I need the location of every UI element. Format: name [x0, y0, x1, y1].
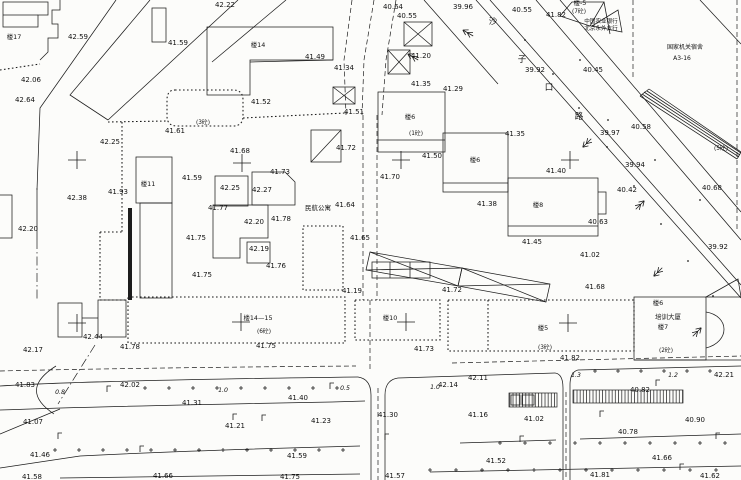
wall-fence — [128, 297, 345, 343]
spot-elevation-label: 41.82 — [546, 11, 566, 19]
spot-elevation-label: 41.61 — [165, 127, 185, 135]
tree-point-mark — [428, 468, 432, 472]
building-outline — [458, 284, 550, 286]
spot-elevation-label: 41.64 — [335, 201, 356, 209]
tree-point-mark — [317, 448, 321, 452]
tree-point-mark — [623, 441, 627, 445]
spot-elevation-label: 41.68 — [230, 147, 250, 155]
building-outline — [0, 195, 12, 238]
spot-elevation-label: 41.58 — [22, 473, 42, 480]
spot-elevation-label: 41.46 — [30, 451, 51, 459]
hatched-structure — [573, 390, 683, 403]
dashed-boundary — [0, 366, 356, 371]
spot-elevation-label: 41.82 — [560, 354, 580, 362]
structure-note-label: (7砼) — [572, 7, 586, 15]
tree-point-mark — [698, 441, 702, 445]
traffic-arrow-icon — [652, 266, 665, 279]
spot-elevation-label: 41.75 — [280, 473, 300, 480]
survey-point-dot — [687, 260, 689, 262]
tree-point-mark — [77, 448, 81, 452]
building-name-label: 中国农业银行 — [584, 17, 618, 25]
street-lamp-icon — [385, 434, 389, 440]
tree-point-mark — [53, 448, 57, 452]
spot-elevation-label: 40.58 — [631, 123, 651, 131]
tree-point-mark — [573, 441, 577, 445]
building-outline — [536, 0, 741, 240]
road-width-label: 1.3 — [571, 372, 581, 379]
dashed-boundary — [362, 0, 374, 115]
building-outline — [385, 378, 398, 480]
tree-point-mark — [548, 441, 552, 445]
tree-point-mark — [708, 369, 712, 373]
road-width-label: 1.0 — [430, 384, 440, 391]
building-number-label: 楼17 — [7, 32, 22, 41]
building-outline — [508, 178, 598, 236]
wall-fence — [0, 64, 40, 70]
survey-point-dot — [660, 223, 662, 225]
tree-point-mark — [598, 441, 602, 445]
building-outline — [60, 474, 360, 478]
building-name-label: 北京永外支行 — [584, 24, 618, 32]
structure-note-label: (6砼) — [257, 327, 271, 335]
spot-elevation-label: 42.11 — [468, 374, 488, 382]
spot-elevation-label: 42.02 — [120, 381, 140, 389]
road-width-label: 0.5 — [340, 385, 350, 392]
building-outline — [70, 0, 150, 120]
street-lamp-icon — [656, 380, 660, 386]
wall-fence — [303, 226, 343, 290]
building-number-label: 楼10 — [383, 313, 398, 322]
building-name-label: 培训大厦 — [655, 312, 682, 321]
building-outline — [706, 312, 724, 348]
spot-elevation-label: 41.62 — [700, 472, 720, 480]
spot-elevation-label: 41.45 — [522, 238, 542, 246]
spot-elevation-label: 41.77 — [208, 204, 228, 212]
tree-point-mark — [239, 386, 243, 390]
survey-point-dot — [654, 159, 656, 161]
tree-point-mark — [341, 448, 345, 452]
spot-elevation-label: 41.66 — [153, 472, 174, 480]
spot-elevation-label: 41.07 — [23, 418, 43, 426]
survey-point-dot — [712, 295, 714, 297]
spot-elevation-label: 42.17 — [23, 346, 43, 354]
tree-point-mark — [191, 386, 195, 390]
tree-point-mark — [149, 448, 153, 452]
spot-elevation-label: 41.72 — [336, 144, 356, 152]
building-outline — [98, 300, 126, 337]
street-lamp-icon — [233, 414, 237, 420]
street-lamp-icon — [600, 411, 604, 417]
building-outline — [37, 0, 116, 190]
spot-elevation-label: 41.52 — [486, 457, 506, 465]
tree-point-mark — [639, 369, 643, 373]
tree-point-mark — [662, 468, 666, 472]
wall-fence — [108, 121, 167, 122]
spot-elevation-label: 41.35 — [411, 80, 431, 88]
building-outline — [207, 27, 333, 95]
tree-point-mark — [723, 441, 727, 445]
tree-point-mark — [245, 448, 249, 452]
survey-point-dot — [579, 59, 581, 61]
spot-elevation-label: 41.31 — [182, 399, 202, 407]
survey-point-dot — [524, 39, 526, 41]
building-outline — [700, 0, 741, 44]
survey-grid-cross — [559, 314, 577, 332]
dashed-boundary — [382, 0, 396, 115]
spot-elevation-label: 40.82 — [630, 386, 650, 394]
tree-point-mark — [648, 441, 652, 445]
spot-elevation-label: 41.59 — [182, 174, 202, 182]
tree-point-mark — [167, 386, 171, 390]
building-outline — [332, 401, 365, 402]
spot-elevation-label: 41.16 — [468, 411, 489, 419]
building-name-label: A3-16 — [673, 55, 691, 62]
tree-point-mark — [616, 369, 620, 373]
building-number-label: 楼8 — [533, 200, 543, 209]
building-outline — [706, 279, 741, 297]
building-number-label: 楼6 — [405, 112, 415, 121]
building-number-label: 楼6 — [470, 155, 480, 164]
traffic-arrow-icon — [691, 326, 704, 339]
structure-note-label: (3砼) — [538, 343, 552, 351]
spot-elevation-label: 42.27 — [252, 186, 272, 194]
survey-point-dot — [578, 107, 580, 109]
spot-elevation-label: 42.20 — [244, 218, 264, 226]
building-outline — [58, 303, 82, 337]
spot-elevation-label: 41.49 — [305, 53, 325, 61]
spot-elevation-label: 39.97 — [600, 129, 620, 137]
spot-elevation-label: 42.59 — [68, 33, 88, 41]
spot-elevation-label: 42.21 — [714, 371, 734, 379]
spot-elevation-label: 41.02 — [580, 251, 600, 259]
spot-elevation-label: 41.83 — [15, 381, 35, 389]
spot-elevation-label: 40.90 — [685, 416, 705, 424]
spot-elevation-label: 41.19 — [342, 287, 362, 295]
building-number-label: 楼-5 — [574, 0, 587, 7]
survey-grid-cross — [392, 151, 410, 169]
building-outline — [430, 466, 741, 472]
spot-elevation-label: 41.51 — [344, 108, 364, 116]
road-width-label: 1.2 — [668, 372, 678, 379]
street-name-char: 口 — [545, 83, 554, 93]
spot-elevation-label: 42.14 — [438, 381, 459, 389]
dashed-boundary — [452, 356, 741, 363]
spot-elevation-label: 41.40 — [288, 394, 308, 402]
survey-grid-cross — [233, 154, 251, 172]
survey-point-dot — [606, 146, 608, 148]
tree-point-mark — [636, 468, 640, 472]
tree-point-mark — [221, 448, 225, 452]
spot-elevation-label: 39.94 — [625, 161, 646, 169]
survey-grid-cross — [397, 313, 415, 331]
spot-elevation-label: 40.63 — [588, 218, 608, 226]
site-plan-drawing: 42.2242.5941.5942.0642.6442.2540.6440.55… — [0, 0, 741, 480]
spot-elevation-label: 42.20 — [18, 225, 38, 233]
spot-elevation-label: 42.44 — [83, 333, 104, 341]
spot-elevation-label: 39.92 — [525, 66, 545, 74]
solid-wall-bar — [128, 208, 132, 300]
spot-elevation-label: 41.93 — [108, 188, 128, 196]
structure-note-label: (5砼) — [714, 144, 728, 152]
tree-point-mark — [673, 441, 677, 445]
tree-point-mark — [263, 386, 267, 390]
building-outline — [40, 0, 60, 60]
spot-elevation-label: 42.06 — [21, 76, 42, 84]
building-outline — [555, 373, 563, 480]
street-lamp-icon — [107, 386, 111, 392]
spot-elevation-label: 41.59 — [168, 39, 188, 47]
building-outline — [366, 268, 462, 270]
building-outline — [3, 2, 48, 27]
hatched-structure — [509, 393, 557, 407]
tree-point-mark — [480, 468, 484, 472]
building-outline — [580, 434, 741, 439]
tree-point-mark — [558, 468, 562, 472]
building-outline — [0, 377, 358, 386]
tree-point-mark — [685, 369, 689, 373]
spot-elevation-label: 41.02 — [524, 415, 544, 423]
tree-point-mark — [688, 468, 692, 472]
building-outline — [36, 366, 56, 414]
building-number-label: 楼6 — [653, 298, 663, 307]
spot-elevation-label: 41.35 — [505, 130, 525, 138]
structure-note-label: (1砼) — [409, 129, 423, 137]
spot-elevation-label: 41.66 — [652, 454, 673, 462]
street-name-char: 路 — [575, 111, 584, 122]
survey-point-dot — [607, 119, 609, 121]
shed-cross-hatch — [388, 50, 410, 74]
street-name-char: 沙 — [489, 17, 498, 27]
spot-elevation-label: 40.78 — [618, 428, 638, 436]
wall-fence — [243, 113, 345, 118]
spot-elevation-label: 41.72 — [442, 286, 462, 294]
traffic-arrow-icon — [634, 199, 647, 212]
spot-elevation-label: 41.59 — [287, 452, 307, 460]
spot-elevation-label: 41.73 — [270, 168, 290, 176]
tree-point-mark — [125, 448, 129, 452]
spot-elevation-label: 41.23 — [311, 417, 331, 425]
building-outline — [578, 366, 741, 370]
tree-point-mark — [311, 386, 315, 390]
building-number-label: 楼14 — [251, 40, 266, 49]
spot-elevation-label: 41.29 — [443, 85, 463, 93]
spot-elevation-label: 41.78 — [120, 343, 140, 351]
spot-elevation-label: 40.42 — [617, 186, 637, 194]
street-lamp-icon — [262, 415, 266, 421]
survey-point-dot — [552, 73, 554, 75]
tree-point-mark — [662, 369, 666, 373]
map-canvas[interactable]: 42.2242.5941.5942.0642.6442.2540.6440.55… — [0, 0, 741, 480]
road-width-label: 1.0 — [218, 387, 228, 394]
spot-elevation-label: 41.81 — [590, 471, 610, 479]
spot-elevation-label: 41.68 — [585, 283, 605, 291]
building-outline — [152, 8, 166, 42]
tree-point-mark — [506, 468, 510, 472]
survey-grid-cross — [68, 151, 86, 169]
spot-elevation-label: 40.68 — [702, 184, 722, 192]
tree-point-mark — [523, 441, 527, 445]
building-name-label: 国家机关宿舍 — [667, 43, 703, 51]
spot-elevation-label: 41.57 — [385, 472, 405, 480]
building-outline — [358, 377, 371, 480]
street-lamp-icon — [140, 446, 144, 452]
tree-point-mark — [143, 386, 147, 390]
spot-elevation-label: 42.25 — [100, 138, 120, 146]
survey-point-dot — [699, 199, 701, 201]
building-outline — [0, 402, 332, 410]
building-number-label: 楼7 — [658, 322, 668, 331]
building-outline — [598, 192, 606, 214]
spot-elevation-label: 41.30 — [378, 411, 398, 419]
shed-cross-hatch — [404, 22, 432, 46]
spot-elevation-label: 41.20 — [411, 52, 431, 60]
dashed-boundary — [344, 0, 352, 115]
traffic-arrow-icon — [461, 27, 474, 38]
building-outline — [140, 203, 172, 298]
spot-elevation-label: 39.92 — [708, 243, 728, 251]
spot-elevation-label: 41.40 — [546, 167, 566, 175]
road-width-label: 0.8 — [55, 389, 65, 396]
spot-elevation-label: 42.25 — [220, 184, 240, 192]
building-number-label: 楼14—15 — [243, 313, 272, 322]
spot-elevation-label: 39.96 — [453, 3, 474, 11]
spot-elevation-label: 41.73 — [414, 345, 434, 353]
wall-fence — [355, 300, 440, 340]
spot-elevation-label: 41.78 — [271, 215, 291, 223]
tree-point-mark — [335, 386, 339, 390]
spot-elevation-label: 42.22 — [215, 1, 235, 9]
shed-cross-hatch — [333, 87, 355, 104]
spot-elevation-label: 40.55 — [397, 12, 417, 20]
spot-elevation-label: 41.75 — [186, 234, 206, 242]
building-outline — [647, 91, 741, 153]
spot-elevation-label: 42.38 — [67, 194, 87, 202]
spot-elevation-label: 40.45 — [583, 66, 603, 74]
spot-elevation-label: 41.34 — [334, 64, 355, 72]
spot-elevation-label: 41.75 — [256, 342, 276, 350]
building-number-label: 楼5 — [538, 323, 548, 332]
spot-elevation-label: 41.50 — [422, 152, 442, 160]
building-outline — [378, 92, 445, 152]
spot-elevation-label: 41.38 — [477, 200, 497, 208]
structure-note-label: (2砼) — [659, 346, 673, 354]
building-name-label: 民航公寓 — [305, 203, 331, 212]
spot-elevation-label: 41.65 — [350, 234, 370, 242]
street-lamp-icon — [716, 433, 720, 439]
building-outline — [640, 89, 649, 96]
spot-elevation-label: 41.76 — [266, 262, 287, 270]
tree-point-mark — [287, 386, 291, 390]
street-lamp-icon — [330, 383, 334, 389]
tree-point-mark — [197, 448, 201, 452]
spot-elevation-label: 41.21 — [225, 422, 245, 430]
tree-point-mark — [101, 448, 105, 452]
structure-note-label: (3砼) — [196, 118, 210, 126]
spot-elevation-label: 40.64 — [383, 3, 404, 11]
spot-elevation-label: 41.52 — [251, 98, 271, 106]
spot-elevation-label: 41.75 — [192, 271, 212, 279]
spot-elevation-label: 41.70 — [380, 173, 400, 181]
building-outline — [570, 370, 578, 480]
building-outline — [108, 0, 238, 120]
traffic-arrow-icon — [581, 137, 594, 150]
tree-point-mark — [532, 468, 536, 472]
building-outline — [212, 0, 286, 62]
building-outline — [460, 440, 556, 443]
spot-elevation-label: 42.64 — [15, 96, 36, 104]
street-name-char: 子 — [518, 55, 527, 65]
survey-grid-cross — [68, 314, 86, 332]
spot-elevation-label: 42.19 — [249, 245, 269, 253]
street-lamp-icon — [58, 433, 62, 439]
spot-elevation-label: 40.55 — [512, 6, 532, 14]
building-number-label: 楼11 — [141, 179, 156, 188]
